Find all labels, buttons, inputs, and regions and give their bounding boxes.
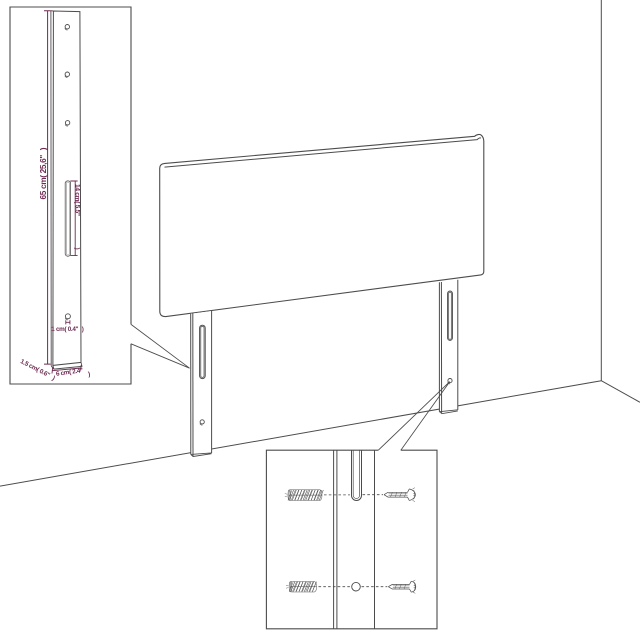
svg-text:1 cm( 0.4": 1 cm( 0.4" [51, 326, 78, 333]
svg-text:65 cm( 25,6": 65 cm( 25,6" [38, 155, 48, 200]
svg-text:): ) [82, 326, 84, 333]
svg-text:14 cm( 5.5": 14 cm( 5.5" [74, 184, 81, 216]
svg-text:): ) [74, 248, 81, 250]
svg-text:): ) [38, 147, 48, 150]
